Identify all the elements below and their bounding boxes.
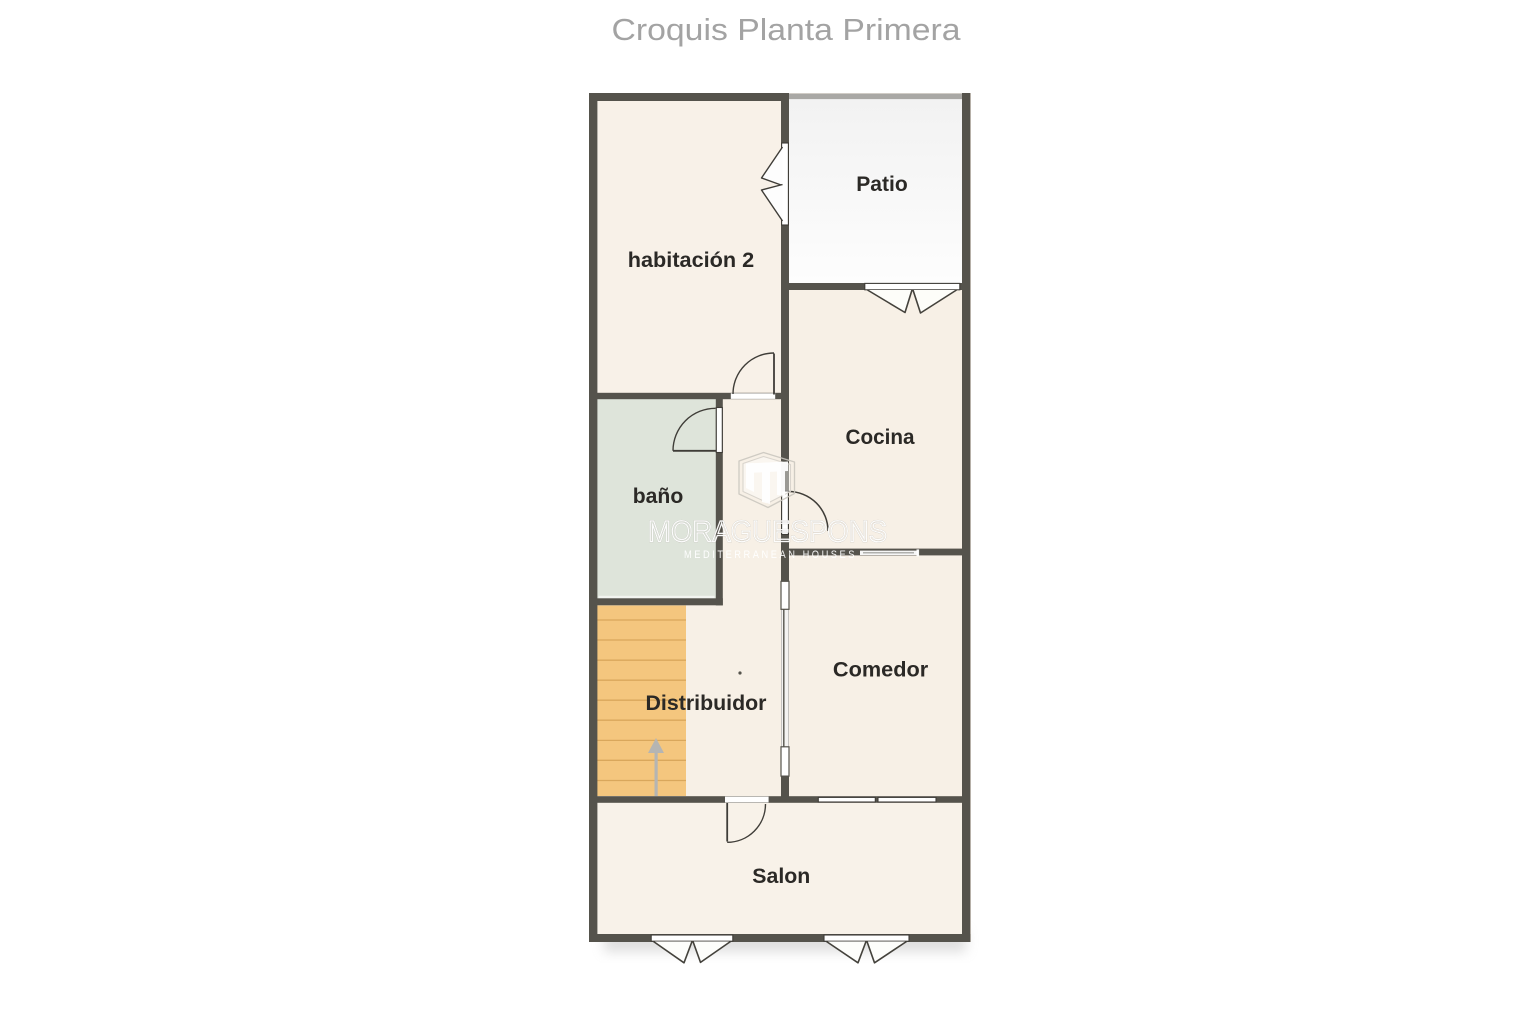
svg-text:Croquis Planta Primera: Croquis Planta Primera — [612, 12, 962, 47]
svg-text:Patio: Patio — [856, 172, 908, 196]
svg-text:MORAGUESPONS: MORAGUESPONS — [648, 516, 887, 549]
svg-text:Distribuidor: Distribuidor — [646, 691, 768, 715]
svg-text:Cocina: Cocina — [846, 425, 916, 449]
svg-text:habitación 2: habitación 2 — [628, 248, 755, 272]
svg-text:baño: baño — [633, 484, 684, 508]
svg-text:MEDITERRANEAN HOUSES: MEDITERRANEAN HOUSES — [684, 549, 857, 561]
svg-text:Salon: Salon — [752, 864, 810, 888]
svg-text:Comedor: Comedor — [833, 658, 929, 682]
